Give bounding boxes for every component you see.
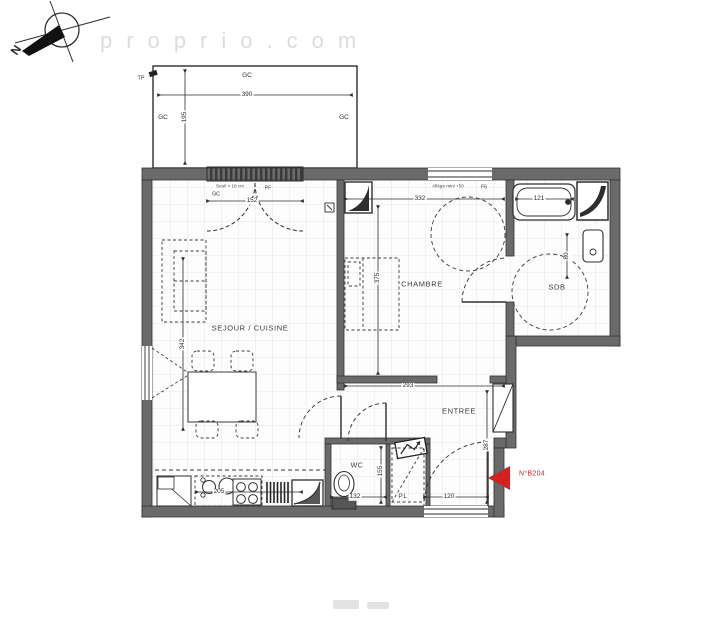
window-code-label: F6 xyxy=(480,185,488,190)
dim-terrace-width: 390 xyxy=(241,92,254,99)
unit-number-label: N°B204 xyxy=(518,471,546,478)
north-arrow-icon xyxy=(22,25,65,56)
room-label-wc: WC xyxy=(350,463,365,470)
gc-label: GC xyxy=(211,192,221,197)
footer-smudge xyxy=(333,600,389,609)
dim-terrace-depth: 195 xyxy=(182,111,189,124)
compass-icon xyxy=(15,1,110,62)
dim-wc-width: 132 xyxy=(349,494,362,501)
room-label-chambre: CHAMBRE xyxy=(400,280,444,288)
dim-basin-width: 80 xyxy=(564,251,571,260)
duct-box xyxy=(345,182,372,213)
dim-tub-length: 121 xyxy=(533,196,546,203)
dim-entry-door: 120 xyxy=(443,494,456,501)
washbasin xyxy=(583,230,603,262)
sejour-window-icon xyxy=(207,167,303,181)
dim-sejour-length: 342 xyxy=(180,338,187,351)
gc-label: GC xyxy=(157,115,169,122)
dim-chambre-width: 332 xyxy=(414,196,427,203)
gc-label: GC xyxy=(338,115,350,122)
dim-wc-depth: 155 xyxy=(378,465,385,478)
dim-sejour-window: 152 xyxy=(246,198,259,205)
dim-chambre-depth: 375 xyxy=(375,272,382,285)
floor-plan-page: proprio.com EL xyxy=(0,0,726,617)
toilet xyxy=(332,472,356,510)
kitchen-appliance xyxy=(292,480,323,506)
room-label-sdb: SDB xyxy=(547,283,566,291)
sill-note: Allège mini +50 xyxy=(431,185,465,190)
dim-entree-width: 293 xyxy=(402,383,415,390)
site-watermark: proprio.com xyxy=(100,28,370,53)
room-label-entree: ENTREE xyxy=(441,407,477,415)
dim-entree-depth: 287 xyxy=(484,439,491,452)
terrace-tp-label: TP xyxy=(136,76,145,82)
radiator xyxy=(267,482,288,503)
shaft xyxy=(493,384,513,432)
shower-corner xyxy=(577,182,608,220)
threshold-note: Seuil < 18 cm xyxy=(215,185,245,190)
switch-symbol xyxy=(325,203,334,212)
floor-plan-drawing: proprio.com EL xyxy=(0,0,726,617)
room-label-closet: PL xyxy=(397,494,408,501)
gc-label: GC xyxy=(241,73,253,80)
svg-text:proprio.com: proprio.com xyxy=(100,28,370,53)
dim-kitchen-run: 205 xyxy=(213,489,226,496)
room-label-sejour: SEJOUR / CUISINE xyxy=(211,324,290,332)
window-pf-label: PF xyxy=(264,186,273,191)
